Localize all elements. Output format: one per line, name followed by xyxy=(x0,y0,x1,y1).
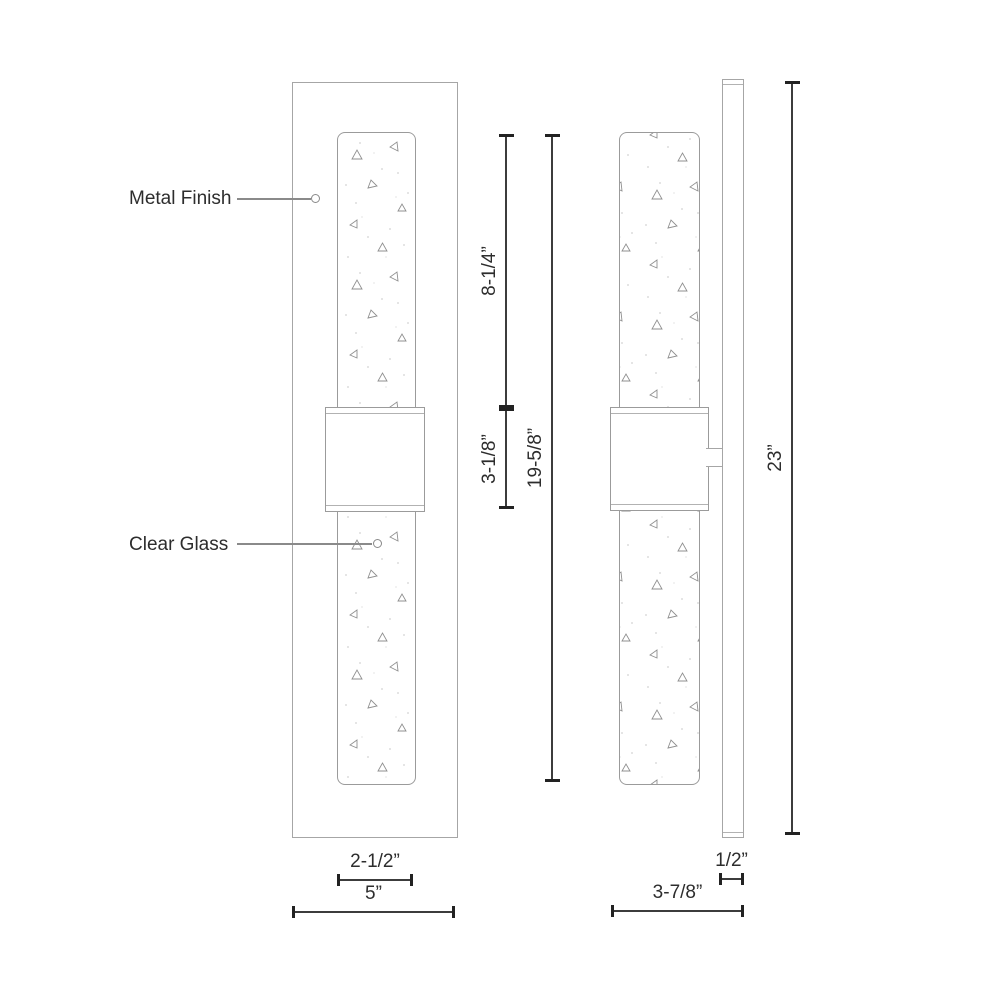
clear-glass-label: Clear Glass xyxy=(129,534,228,556)
dim-tick-right xyxy=(452,906,455,918)
metal-finish-leader-dot xyxy=(311,194,320,203)
clear-glass-leader-dot xyxy=(373,539,382,548)
metal-finish-leader-line xyxy=(237,198,311,200)
dim-tick-top xyxy=(499,134,514,137)
dim-tick-left xyxy=(292,906,295,918)
dim-tick-top xyxy=(545,134,560,137)
dim-tick-right xyxy=(741,905,744,917)
dim-text: 8-1/4” xyxy=(479,246,501,296)
dim-tick-top xyxy=(499,408,514,411)
dim-tick-bottom xyxy=(785,832,800,835)
metal-finish-label: Metal Finish xyxy=(129,188,231,210)
dim-line xyxy=(551,135,553,781)
clear-glass-leader-line xyxy=(237,543,372,545)
dim-tick-right xyxy=(741,873,744,885)
dim-line xyxy=(293,911,454,913)
dim-line xyxy=(720,878,743,880)
dim-line xyxy=(505,135,507,407)
dim-text: 2-1/2” xyxy=(350,851,400,873)
side-view-center-band xyxy=(610,407,709,511)
dim-line xyxy=(791,82,793,834)
band-bottom-lip xyxy=(326,505,424,506)
dim-tick-bottom xyxy=(499,506,514,509)
dim-tick-bottom xyxy=(545,779,560,782)
dim-tick-left xyxy=(719,873,722,885)
dim-tick-left xyxy=(337,874,340,886)
dim-tick-right xyxy=(410,874,413,886)
dim-text: 1/2” xyxy=(715,850,748,872)
dim-text: 19-5/8” xyxy=(525,428,547,488)
dim-text: 3-7/8” xyxy=(653,882,703,904)
dimension-drawing-canvas: Metal Finish Clear Glass 8-1/4” 3-1/8” 1… xyxy=(0,0,1000,1000)
dim-tick-top xyxy=(785,81,800,84)
dim-line xyxy=(338,879,412,881)
dim-text: 5” xyxy=(365,883,382,905)
dim-line xyxy=(505,409,507,508)
backplate-top-cap xyxy=(723,84,743,85)
band-top-lip xyxy=(611,413,708,414)
dim-line xyxy=(612,910,743,912)
band-bottom-lip xyxy=(611,504,708,505)
side-view-mount-bracket xyxy=(706,448,722,467)
dim-text: 3-1/8” xyxy=(479,434,501,484)
front-view-center-band xyxy=(325,407,425,512)
backplate-bottom-cap xyxy=(723,832,743,833)
band-top-lip xyxy=(326,413,424,414)
dim-text: 23” xyxy=(765,444,787,471)
side-view-backplate xyxy=(722,79,744,838)
dim-tick-left xyxy=(611,905,614,917)
